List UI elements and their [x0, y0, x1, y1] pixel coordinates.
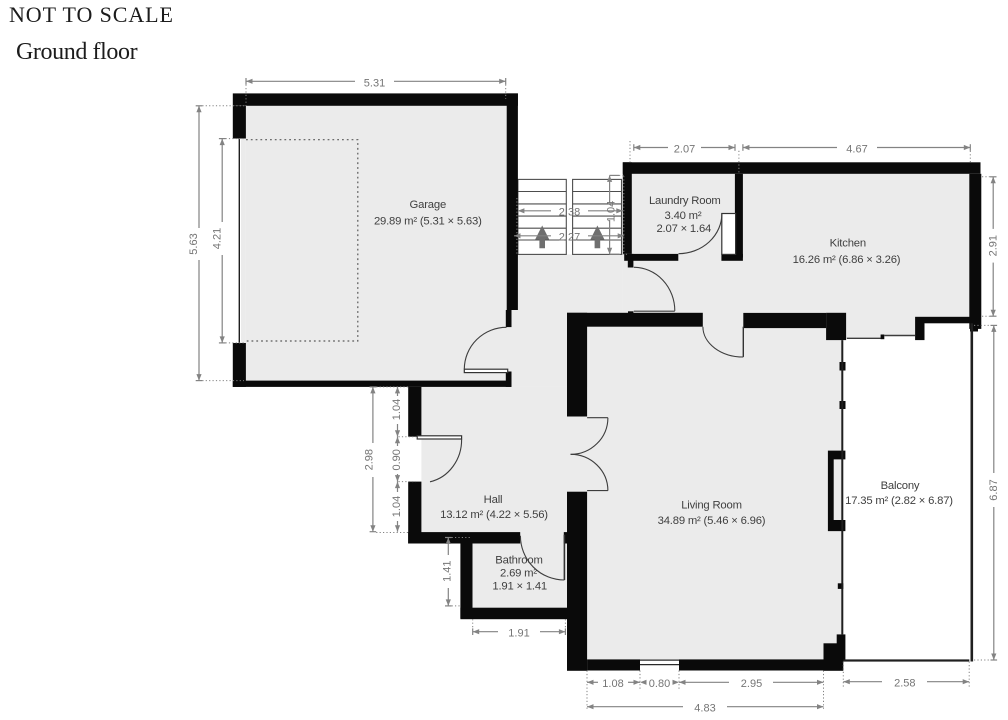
svg-text:Hall: Hall: [484, 494, 503, 506]
svg-text:2.95: 2.95: [741, 678, 762, 690]
svg-text:4.83: 4.83: [694, 703, 715, 715]
svg-text:4.21: 4.21: [211, 228, 223, 249]
svg-text:NOT TO SCALE: NOT TO SCALE: [9, 2, 174, 27]
svg-text:6.87: 6.87: [988, 479, 1000, 500]
svg-text:Garage: Garage: [410, 199, 446, 211]
svg-text:1.04: 1.04: [606, 201, 618, 222]
svg-text:34.89 m² (5.46 × 6.96): 34.89 m² (5.46 × 6.96): [658, 515, 766, 527]
svg-text:5.31: 5.31: [364, 78, 385, 90]
svg-text:1.41: 1.41: [442, 560, 454, 581]
svg-text:16.26 m² (6.86 × 3.26): 16.26 m² (6.86 × 3.26): [793, 254, 901, 266]
svg-text:1.91 × 1.41: 1.91 × 1.41: [492, 581, 547, 593]
svg-text:1.91: 1.91: [508, 628, 529, 640]
svg-text:2.91: 2.91: [987, 235, 999, 256]
svg-text:1.08: 1.08: [602, 678, 623, 690]
svg-text:Bathroom: Bathroom: [495, 555, 542, 567]
svg-text:5.63: 5.63: [188, 233, 200, 254]
svg-text:2.27: 2.27: [559, 232, 580, 244]
svg-text:0.90: 0.90: [391, 449, 403, 470]
svg-text:1.04: 1.04: [391, 399, 403, 420]
svg-text:1.04: 1.04: [391, 496, 403, 517]
svg-text:Laundry Room: Laundry Room: [649, 195, 721, 207]
svg-text:2.07 × 1.64: 2.07 × 1.64: [656, 223, 711, 235]
svg-text:17.35 m² (2.82 × 6.87): 17.35 m² (2.82 × 6.87): [845, 495, 953, 507]
svg-text:2.07: 2.07: [674, 143, 695, 155]
svg-text:29.89 m² (5.31 × 5.63): 29.89 m² (5.31 × 5.63): [374, 216, 482, 228]
svg-text:Living Room: Living Room: [681, 500, 742, 512]
svg-text:4.67: 4.67: [846, 143, 867, 155]
svg-text:0.80: 0.80: [649, 678, 670, 690]
svg-text:2.58: 2.58: [894, 677, 915, 689]
svg-text:2.69 m²: 2.69 m²: [500, 568, 537, 580]
svg-text:Ground floor: Ground floor: [16, 39, 138, 65]
svg-text:Kitchen: Kitchen: [830, 238, 866, 250]
svg-text:2.38: 2.38: [559, 207, 580, 219]
svg-text:13.12 m² (4.22 × 5.56): 13.12 m² (4.22 × 5.56): [440, 509, 548, 521]
svg-text:2.98: 2.98: [363, 449, 375, 470]
svg-text:3.40 m²: 3.40 m²: [665, 210, 702, 222]
svg-text:Balcony: Balcony: [881, 480, 920, 492]
